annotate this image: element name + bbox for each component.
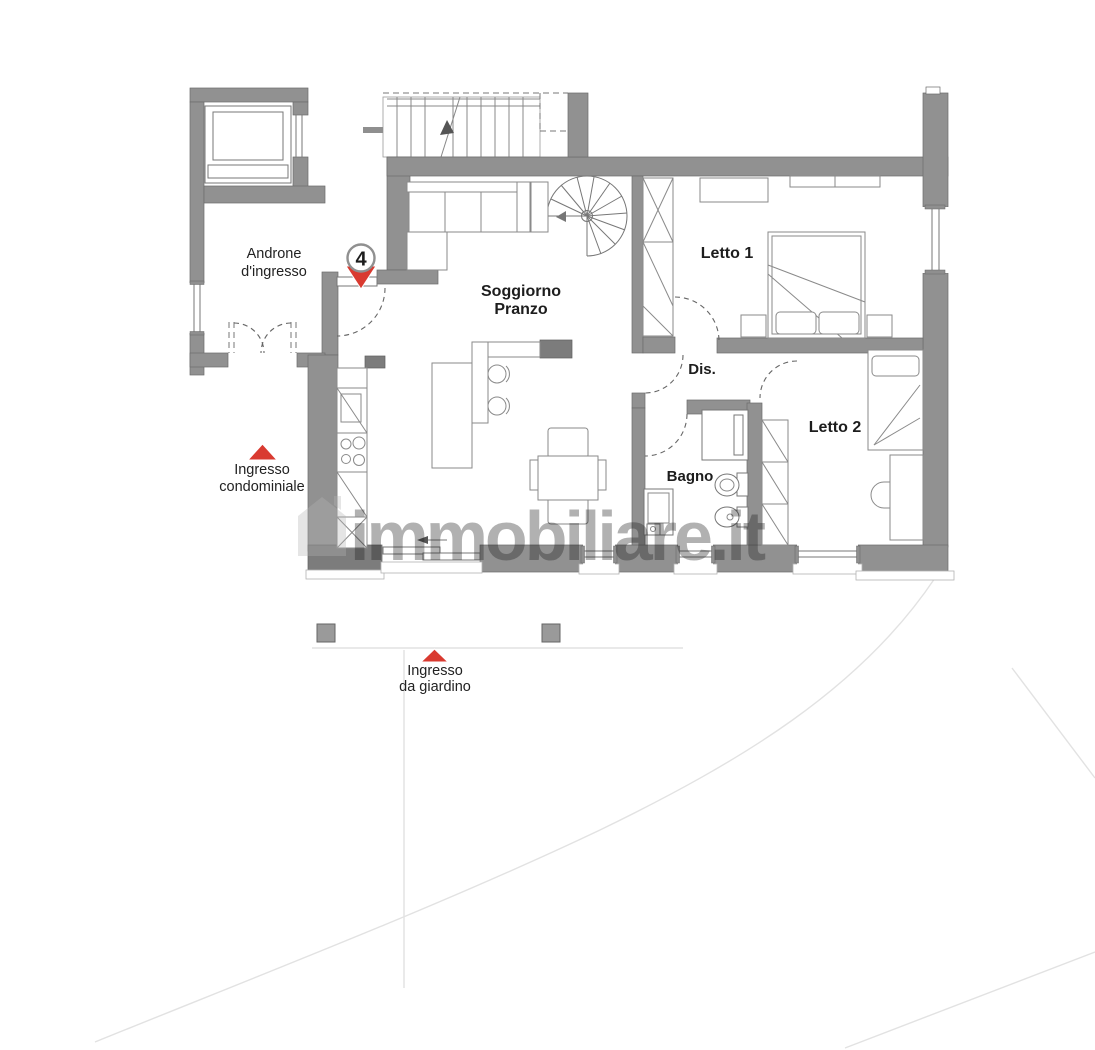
double-swing-door-androne xyxy=(229,322,296,353)
entrance-arrow-condominiale-icon xyxy=(248,444,277,460)
label-ingresso-condominiale-line2: condominiale xyxy=(219,479,304,495)
garden-pillars xyxy=(317,624,560,642)
pillar xyxy=(542,624,560,642)
label-androne-line2: d'ingresso xyxy=(241,264,307,280)
door-arc-dis-letto2 xyxy=(760,361,797,398)
door-arc-dis-letto1 xyxy=(675,297,719,341)
unit-number: 4 xyxy=(355,249,367,271)
bar-stool xyxy=(488,397,509,415)
label-letto2: Letto 2 xyxy=(809,419,862,436)
spiral-staircase xyxy=(547,176,627,256)
dresser-letto1 xyxy=(700,176,880,202)
kitchen-island xyxy=(432,342,540,468)
toilet-icon xyxy=(715,473,748,496)
label-ingresso-giardino-line2: da giardino xyxy=(399,679,471,695)
window-letto2-south xyxy=(793,544,862,574)
watermark-text: immobiliare.it xyxy=(350,497,766,575)
pillar xyxy=(317,624,335,642)
label-ingresso-giardino-line1: Ingresso xyxy=(407,663,463,679)
wardrobe-letto2 xyxy=(762,420,788,545)
door-arc-bagno xyxy=(645,414,687,456)
label-soggiorno-line1: Soggiorno xyxy=(481,283,561,300)
wardrobe-letto1 xyxy=(643,178,673,336)
entrance-arrow-giardino-icon xyxy=(421,649,448,662)
watermark: immobiliare.it xyxy=(298,496,766,575)
window-androne xyxy=(189,281,205,335)
garden-boundary-lines xyxy=(95,578,1095,1048)
label-ingresso-condominiale-line1: Ingresso xyxy=(234,462,290,478)
floor-plan-page: 4 Androne d'ingresso Soggiorno Pranzo Le… xyxy=(0,0,1095,1050)
label-dis: Dis. xyxy=(688,361,716,378)
bathroom-sink xyxy=(702,410,748,460)
floor-plan-drawing: 4 Androne d'ingresso Soggiorno Pranzo Le… xyxy=(0,0,1095,1050)
bar-stool xyxy=(488,365,509,383)
window-letto1 xyxy=(922,205,949,274)
sofa xyxy=(407,182,548,270)
label-androne-line1: Androne xyxy=(247,246,302,262)
label-soggiorno-line2: Pranzo xyxy=(494,301,548,318)
label-letto1: Letto 1 xyxy=(701,245,754,262)
door-arc-soggiorno-dis xyxy=(645,355,683,393)
desk-letto2 xyxy=(871,455,923,540)
building-staircase xyxy=(363,93,568,157)
elevator xyxy=(205,106,302,183)
watermark-house-icon xyxy=(298,496,346,556)
label-bagno: Bagno xyxy=(667,468,714,485)
bed-letto1 xyxy=(741,232,892,338)
bed-letto2 xyxy=(868,350,923,450)
